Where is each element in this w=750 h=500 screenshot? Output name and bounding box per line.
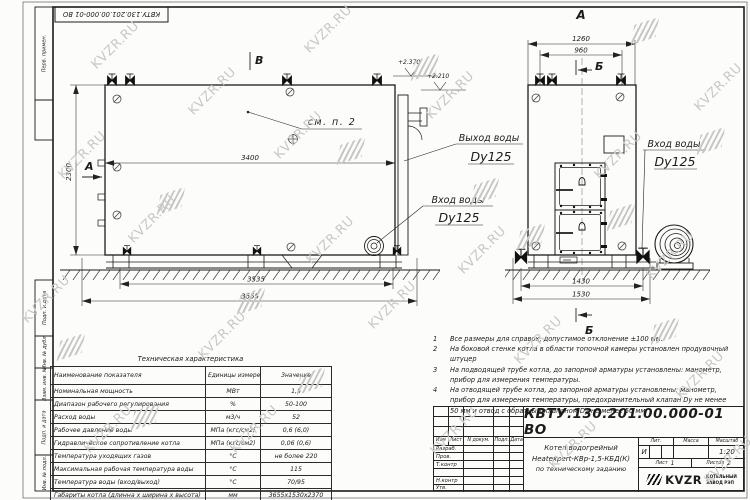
tech-table-cell: 3655х1530х2370 xyxy=(261,489,332,500)
dim-front-width1: 1260 xyxy=(572,35,590,43)
elevation-top: +2.370 xyxy=(398,59,420,66)
tech-table-cell: 1,5 xyxy=(261,385,332,398)
tech-table-cell: Номинальная мощность xyxy=(51,385,206,398)
tech-table-cell: 115 xyxy=(261,463,332,476)
revision-grid: Изм Лист N докум. Подп. Дата Разраб. Про… xyxy=(434,407,524,492)
tech-header-name: Наименование показателя xyxy=(51,367,206,385)
tech-table-cell: Максимальная рабочая температура воды xyxy=(51,463,206,476)
scale-value: 1:20 xyxy=(709,446,745,458)
sheets-label: Листов xyxy=(706,461,724,466)
tech-header-value: Значение xyxy=(261,367,332,385)
tech-table-cell: Температура воды (вход/выход) xyxy=(51,476,206,489)
rev-row-label: Разраб. xyxy=(434,446,464,453)
tech-table-row: Температура уходящих газов°Сне более 220 xyxy=(51,450,332,463)
drawing-title-line3: по техническому заданию xyxy=(524,464,638,474)
company-logo: KVZR КОТЕЛЬНЫЙ ЗАВОД РЭП xyxy=(639,468,745,491)
door-bolts xyxy=(560,164,607,254)
view-label-a: А xyxy=(575,8,585,22)
margin-label: Инв. № подл. xyxy=(42,456,48,491)
rev-row-label: Пров. xyxy=(434,453,464,460)
dim-front-total: 1530 xyxy=(572,291,590,299)
dim-total-length: 3655 xyxy=(241,293,259,301)
tech-table-cell: Диапазон рабочего регулирования xyxy=(51,398,206,411)
top-stamp-number: КВТУ.130.201.00.000-01 ВО xyxy=(62,10,160,18)
section-label-v: В xyxy=(255,54,263,67)
drawing-title-line1: Котел водогрейный xyxy=(524,443,638,454)
boiler-side-view xyxy=(98,74,427,268)
drawing-title-line2: Heatexpert-КВр-1,5-КБД(К) xyxy=(524,454,638,465)
sheets-cell: Листов 2 xyxy=(692,459,745,467)
rev-header: Изм xyxy=(434,437,449,445)
tech-table-cell: 52 xyxy=(261,411,332,424)
tech-table-cell: Гидравлическое сопротивление котла xyxy=(51,437,206,450)
tech-table-header-row: Наименование показателя Единицы измерени… xyxy=(51,367,332,385)
rev-row-label xyxy=(434,469,464,476)
title-block-right: Лит. Масса Масштаб И 1:20 Лист 1 Листов … xyxy=(639,438,745,492)
tech-table-cell: Расход воды xyxy=(51,411,206,424)
tech-table-cell: 0,6 (6,0) xyxy=(261,424,332,437)
rev-header: Дата xyxy=(510,437,523,445)
sheets-value: 2 xyxy=(727,460,731,467)
note-text: На подводящей трубе котла, до запорной а… xyxy=(450,365,736,385)
note-item: 1 Все размеры для справок, допустимое от… xyxy=(433,334,736,344)
note-number: 3 xyxy=(433,365,450,385)
tech-table-row: Диапазон рабочего регулирования%50-100 xyxy=(51,398,332,411)
margin-label: Подп. и дата xyxy=(42,410,48,444)
note-item: 3 На подводящей трубе котла, до запорной… xyxy=(433,365,736,385)
ground-line-left xyxy=(60,270,440,280)
rev-row-label: Утв. xyxy=(434,485,464,492)
tech-table: Наименование показателя Единицы измерени… xyxy=(50,366,332,500)
lit-header: Лит. xyxy=(639,438,674,445)
tech-table-cell: 70/95 xyxy=(261,476,332,489)
tech-table-cell: °С xyxy=(206,476,261,489)
sheet-cell: Лист 1 xyxy=(639,459,692,467)
company-name-line2: ЗАВОД РЭП xyxy=(706,480,737,485)
callout-inlet-front-line2: Dy125 xyxy=(655,154,696,169)
mass-header: Масса xyxy=(674,438,709,445)
callout-outlet-line2: Dy125 xyxy=(471,149,512,164)
drawing-sheet: КВТУ.130.201.00.000-01 ВО Перв. примен. … xyxy=(0,0,750,500)
rev-header: Подп. xyxy=(494,437,510,445)
tech-table-cell: м3/ч xyxy=(206,411,261,424)
margin-label: Инв. № дубл. xyxy=(42,335,48,369)
callout-inlet-side-line1: Вход воды xyxy=(431,195,485,206)
tech-table-row: Гидравлическое сопротивление котлаМПа (к… xyxy=(51,437,332,450)
note-number: 2 xyxy=(433,344,450,364)
tech-table-cell: Температура уходящих газов xyxy=(51,450,206,463)
rev-row-label: Т.контр xyxy=(434,461,464,468)
kvzr-logo-text: KVZR xyxy=(665,473,702,487)
callout-outlet-line1: Выход воды xyxy=(459,133,520,144)
tech-table-cell: 50-100 xyxy=(261,398,332,411)
mass-value xyxy=(674,446,709,458)
tech-table-cell: Габариты котла (длинна х ширина х высота… xyxy=(51,489,206,500)
tech-table-cell: не более 220 xyxy=(261,450,332,463)
dim-height: 2300 xyxy=(65,163,73,181)
tech-table-cell: % xyxy=(206,398,261,411)
margin-label: Подп. и дата xyxy=(42,291,48,325)
tech-table-row: Рабочее давление водыМПа (кгс/см2)0,6 (6… xyxy=(51,424,332,437)
margin-label: Взам. инв. № xyxy=(42,367,48,401)
lit-boxes: И xyxy=(639,446,674,458)
note-number: 1 xyxy=(433,334,450,344)
rev-row-label: Н.контр xyxy=(434,477,464,484)
rev-header: Лист xyxy=(449,437,464,445)
tech-table-cell: 0,06 (0,6) xyxy=(261,437,332,450)
tech-header-units: Единицы измерения xyxy=(206,367,261,385)
lit-value: И xyxy=(639,446,650,458)
tech-table-row: Температура воды (вход/выход)°С70/95 xyxy=(51,476,332,489)
company-name: КОТЕЛЬНЫЙ ЗАВОД РЭП xyxy=(706,474,737,485)
sheet-value: 1 xyxy=(671,460,675,467)
rev-header: N докум. xyxy=(464,437,495,445)
see-note-ref: см. п. 2 xyxy=(308,117,357,128)
top-stamp: КВТУ.130.201.00.000-01 ВО xyxy=(55,7,168,22)
kvzr-logo-icon xyxy=(645,474,663,485)
tech-table-cell: МВт xyxy=(206,385,261,398)
scale-header: Масштаб xyxy=(709,438,745,445)
note-item: 2 На боковой стенке котла в области топо… xyxy=(433,344,736,364)
tech-table-row: Номинальная мощностьМВт1,5 xyxy=(51,385,332,398)
drawing-title: Котел водогрейный Heatexpert-КВр-1,5-КБД… xyxy=(524,438,639,492)
ground-line-right xyxy=(505,270,710,280)
tech-table-cell: мм xyxy=(206,489,261,500)
tech-characteristics: Техническая характеристика Наименование … xyxy=(50,355,331,500)
note-text: Все размеры для справок, допустимое откл… xyxy=(450,334,736,344)
elevation-lower: +2.210 xyxy=(427,73,449,80)
dim-front-width2: 960 xyxy=(574,47,588,55)
tech-table-cell: МПа (кгс/см2) xyxy=(206,437,261,450)
tech-table-cell: °С xyxy=(206,450,261,463)
callout-inlet-front-line1: Вход воды xyxy=(647,139,701,150)
format-field: Формат А3 xyxy=(648,492,700,500)
margin-label: Перв. примен. xyxy=(42,35,48,73)
tech-table-row: Расход водым3/ч52 xyxy=(51,411,332,424)
note-text: На боковой стенке котла в области топочн… xyxy=(450,344,736,364)
section-label-b-top: Б xyxy=(595,60,603,73)
sheet-label: Лист xyxy=(656,461,668,466)
section-label-a: А xyxy=(84,160,94,173)
notes-list: 1 Все размеры для справок, допустимое от… xyxy=(433,334,736,416)
title-block: Изм Лист N докум. Подп. Дата Разраб. Про… xyxy=(433,406,744,491)
tech-table-cell: МПа (кгс/см2) xyxy=(206,424,261,437)
margin-labels: Перв. примен. Подп. и дата Инв. № дубл. … xyxy=(42,35,49,491)
tech-table-cell: °С xyxy=(206,463,261,476)
tech-table-title: Техническая характеристика xyxy=(50,355,331,366)
callout-inlet-side-line2: Dy125 xyxy=(439,210,480,225)
tech-table-row: Габариты котла (длинна х ширина х высота… xyxy=(51,489,332,500)
tech-table-cell: Рабочее давление воды xyxy=(51,424,206,437)
dim-inner-length: 3400 xyxy=(241,154,259,162)
tech-table-row: Максимальная рабочая температура воды°С1… xyxy=(51,463,332,476)
document-number: КВТУ.130.201.00.000-01 ВО xyxy=(524,407,745,438)
